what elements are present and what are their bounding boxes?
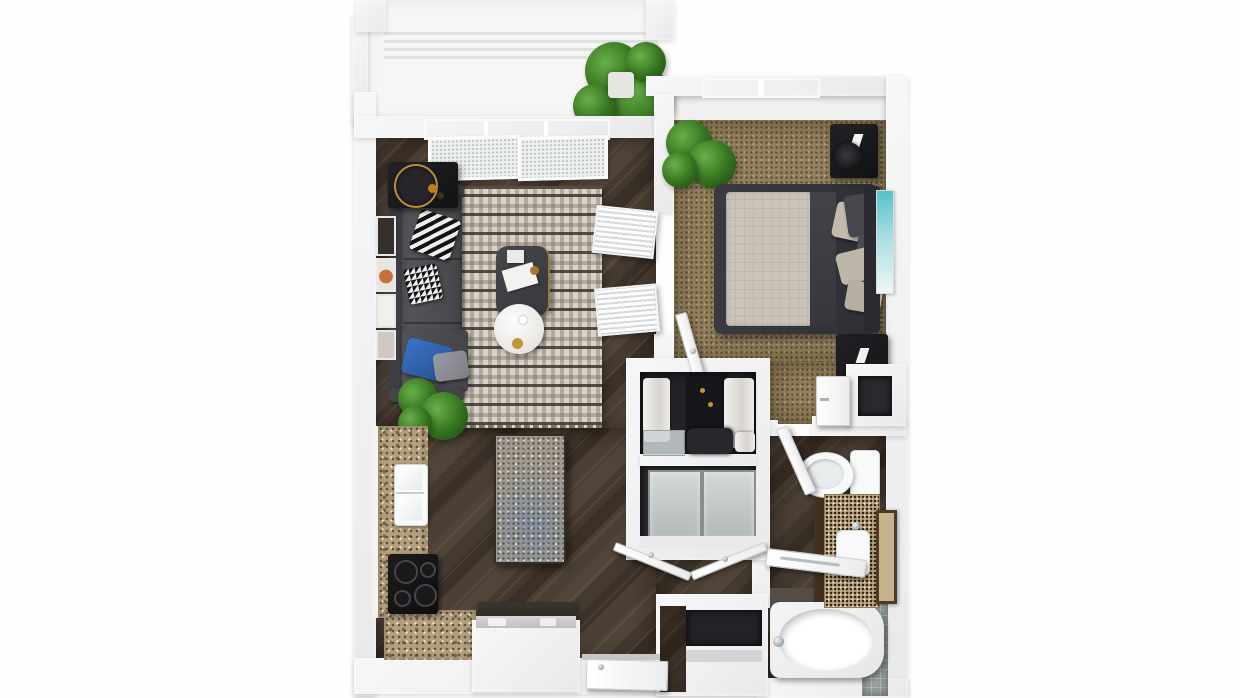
sink-basin bbox=[398, 468, 422, 490]
magazine-on-table bbox=[507, 250, 524, 263]
frosted-door bbox=[648, 470, 702, 540]
bifold-handle-icon bbox=[722, 556, 728, 562]
bottle-icon bbox=[437, 192, 444, 199]
door-to-bathroom bbox=[816, 376, 850, 426]
sink-basin bbox=[398, 498, 422, 520]
drawer-unit bbox=[643, 430, 685, 456]
plate-icon bbox=[540, 618, 556, 626]
burner-icon bbox=[394, 560, 418, 584]
bathtub-basin bbox=[779, 609, 873, 671]
boot-icon bbox=[700, 388, 705, 393]
plate-icon bbox=[488, 618, 506, 626]
hat-on-nightstand bbox=[834, 142, 862, 170]
sliding-door-screen bbox=[518, 135, 608, 181]
tub-faucet-icon bbox=[773, 636, 784, 647]
door-handle-icon bbox=[820, 398, 829, 401]
door-handle-icon bbox=[690, 348, 696, 354]
linen-alcove-recess bbox=[858, 376, 892, 416]
faucet-icon bbox=[852, 522, 860, 530]
planter-pot bbox=[608, 72, 634, 98]
bifold-handle-icon bbox=[648, 552, 654, 558]
louvered-door bbox=[594, 283, 660, 336]
louvered-door bbox=[592, 205, 659, 259]
storage-box bbox=[687, 428, 733, 454]
wall-art-frame bbox=[376, 294, 396, 328]
balcony-post bbox=[356, 0, 386, 32]
bedroom-plant-icon bbox=[662, 152, 698, 188]
leaning-mirror bbox=[876, 510, 897, 604]
laundry-threshold bbox=[640, 536, 756, 548]
bedroom-window bbox=[702, 78, 820, 98]
sink-divider bbox=[396, 492, 424, 494]
cup-icon bbox=[519, 316, 527, 324]
gray-throw-pillow bbox=[432, 350, 470, 382]
wall-art-frame bbox=[376, 216, 396, 256]
niche-recess bbox=[686, 610, 762, 646]
gold-decor bbox=[512, 338, 523, 349]
burner-icon bbox=[414, 584, 437, 607]
niche-shelf bbox=[686, 650, 762, 662]
floor-plan-render bbox=[0, 0, 1240, 698]
kitchen-counter-bottom bbox=[384, 610, 476, 660]
bed-runner bbox=[810, 192, 836, 326]
entry-door-handle-icon bbox=[598, 664, 604, 670]
sofa-cushion-seam bbox=[404, 322, 462, 324]
burner-icon bbox=[394, 590, 411, 607]
bottle-icon bbox=[428, 184, 437, 193]
toilet-tank bbox=[850, 450, 880, 498]
kitchen-half-wall bbox=[472, 620, 580, 692]
teal-wall-art bbox=[876, 190, 894, 294]
boot-icon bbox=[708, 402, 713, 407]
sofa-cushion-seam bbox=[404, 258, 462, 260]
folded-garment bbox=[735, 432, 755, 452]
wall-art-frame bbox=[376, 258, 396, 292]
balcony-post bbox=[646, 0, 674, 40]
frosted-door bbox=[702, 470, 756, 540]
burner-icon bbox=[420, 562, 436, 578]
wall-art-frame bbox=[376, 330, 396, 360]
patterned-throw-pillow bbox=[403, 263, 444, 305]
decor-bowl bbox=[530, 266, 539, 275]
kitchen-island-table bbox=[494, 434, 566, 564]
bed-blanket bbox=[726, 192, 812, 326]
